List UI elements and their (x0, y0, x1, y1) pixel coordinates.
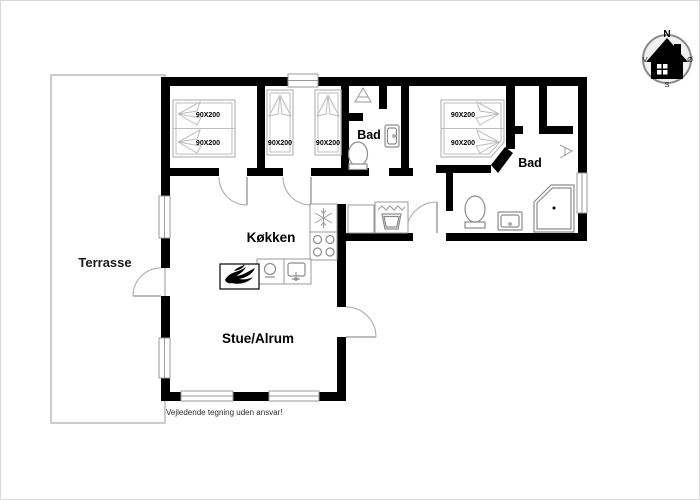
living-room: Stue/Alrum (222, 331, 294, 346)
wall-segment (578, 77, 587, 173)
wood-stove-icon (220, 264, 259, 289)
floorplan-page: Terrasse (0, 0, 700, 500)
toilet-icon (465, 196, 485, 228)
window (269, 391, 319, 401)
floorplan-drawing: Terrasse (1, 1, 700, 500)
compass-north-label: N (663, 29, 670, 40)
fridge-icon (310, 204, 337, 232)
wall-segment (506, 126, 523, 134)
kitchen: Køkken (220, 204, 337, 289)
kitchen-label: Køkken (247, 230, 296, 245)
wall-segment (161, 77, 170, 196)
door-bedroom2 (283, 177, 311, 205)
kitchen-sink-icon (284, 259, 311, 284)
wall-segment (247, 168, 283, 176)
bedroom-3: 90X200 90X200 (441, 100, 504, 157)
wall-segment (170, 168, 219, 176)
wall-segment (341, 86, 349, 169)
bathroom-2: Bad (465, 145, 574, 232)
door-entrance (406, 202, 437, 233)
bed-size-label: 90X200 (196, 112, 220, 119)
wall-segment (337, 204, 346, 307)
wall-segment (578, 213, 587, 241)
bathroom-label: Bad (518, 156, 542, 170)
bedroom-1: 90X200 90X200 (173, 100, 235, 157)
terrace: Terrasse (51, 75, 165, 423)
doors (133, 177, 437, 337)
washbasin-icon (498, 212, 522, 230)
door-bedroom1 (219, 177, 247, 205)
washbasin-icon (385, 125, 399, 147)
vent-icon (355, 88, 371, 102)
wall-segment (257, 86, 265, 169)
wall-segment (401, 86, 409, 176)
double-bed-icon (173, 100, 235, 157)
stove-icon (310, 232, 337, 260)
wall-segment (379, 86, 387, 109)
terrace-outline (51, 75, 165, 423)
wall-segment (161, 392, 181, 401)
wall-segment (446, 172, 453, 211)
compass-rose: N V Ø S (642, 29, 693, 89)
wall-segment (337, 337, 346, 401)
window (577, 173, 587, 213)
bedroom-2: 90X200 90X200 (267, 90, 341, 155)
bed-size-label: 90X200 (316, 140, 340, 147)
wall-segment (346, 113, 363, 121)
wall-segment (337, 233, 413, 241)
window (159, 196, 170, 238)
shower-icon (534, 185, 574, 232)
bed-size-label: 90X200 (451, 140, 475, 147)
wall-segment (539, 86, 547, 132)
window (181, 391, 233, 401)
compass-west-label: V (642, 55, 647, 64)
terrace-label: Terrasse (78, 255, 131, 270)
wall-segment (161, 77, 587, 86)
bed-size-label: 90X200 (268, 140, 292, 147)
living-room-label: Stue/Alrum (222, 331, 294, 346)
wall-segment (161, 238, 170, 268)
wall-segment (161, 296, 170, 338)
window (159, 338, 170, 378)
vent-icon (560, 145, 572, 158)
hallway (348, 202, 408, 233)
bed-size-label: 90X200 (451, 112, 475, 119)
cabinet-icon (348, 205, 374, 233)
wall-segment (436, 165, 491, 173)
disclaimer-text: Vejledende tegning uden ansvar! (166, 408, 283, 417)
wall-segment (446, 233, 587, 241)
double-bed-icon (441, 100, 504, 157)
wall-segment (506, 86, 515, 149)
bed-size-label: 90X200 (196, 140, 220, 147)
kitchen-cabinet-icon (257, 259, 284, 284)
wall-segment (233, 392, 269, 401)
compass-east-label: Ø (687, 55, 693, 64)
door-living-east (346, 307, 376, 337)
window (288, 74, 318, 87)
compass-south-label: S (664, 80, 669, 89)
toilet-icon (349, 142, 368, 170)
washing-machine-icon (375, 202, 408, 233)
bathroom-label: Bad (357, 128, 381, 142)
bathroom-1: Bad (349, 88, 400, 170)
